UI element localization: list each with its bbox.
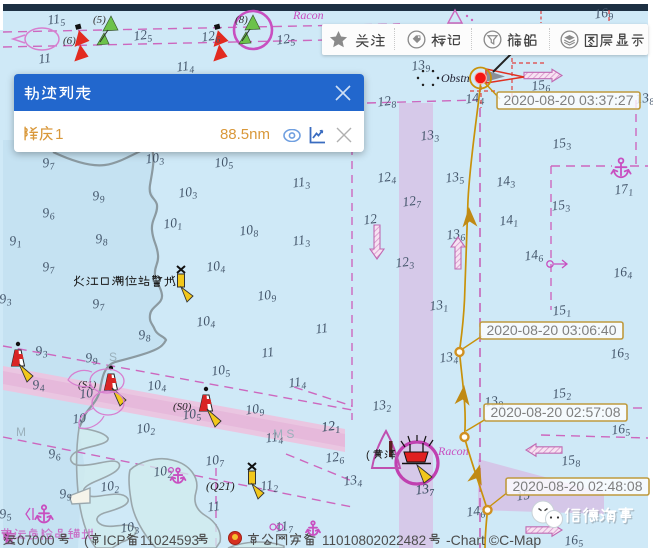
svg-text:Racon: Racon bbox=[292, 8, 324, 22]
svg-text:2020-08-20 02:57:08: 2020-08-20 02:57:08 bbox=[491, 404, 621, 420]
svg-text:(6): (6) bbox=[63, 35, 76, 47]
svg-text:11024593: 11024593 bbox=[140, 533, 199, 548]
svg-text:M S: M S bbox=[273, 427, 294, 441]
svg-text:(: ( bbox=[84, 533, 89, 548]
svg-text:2020-08-20 02:48:08: 2020-08-20 02:48:08 bbox=[513, 478, 643, 494]
svg-text:-Chart ©C-Map: -Chart ©C-Map bbox=[446, 532, 541, 548]
svg-text:M: M bbox=[16, 425, 26, 439]
svg-text:Obstn: Obstn bbox=[441, 71, 470, 85]
svg-text:S: S bbox=[109, 350, 117, 364]
svg-text:11: 11 bbox=[315, 320, 329, 336]
svg-text:11: 11 bbox=[38, 50, 52, 66]
svg-text:11010802022482: 11010802022482 bbox=[322, 533, 426, 548]
svg-text:2020-08-20 03:37:27: 2020-08-20 03:37:27 bbox=[504, 92, 634, 108]
svg-text:(Q21): (Q21) bbox=[206, 479, 235, 493]
svg-text:11: 11 bbox=[207, 498, 221, 514]
svg-text:2020-08-20 03:06:40: 2020-08-20 03:06:40 bbox=[487, 322, 617, 338]
svg-text:(5): (5) bbox=[93, 14, 106, 26]
svg-text:11: 11 bbox=[261, 344, 275, 360]
svg-text:07000: 07000 bbox=[17, 533, 55, 548]
svg-text:1: 1 bbox=[55, 126, 63, 143]
svg-text:ICP: ICP bbox=[103, 533, 126, 548]
svg-text:(8): (8) bbox=[235, 14, 248, 26]
svg-text:(: ( bbox=[366, 449, 370, 461]
svg-text:(S0): (S0) bbox=[173, 401, 192, 413]
svg-text:Racon: Racon bbox=[437, 444, 469, 458]
